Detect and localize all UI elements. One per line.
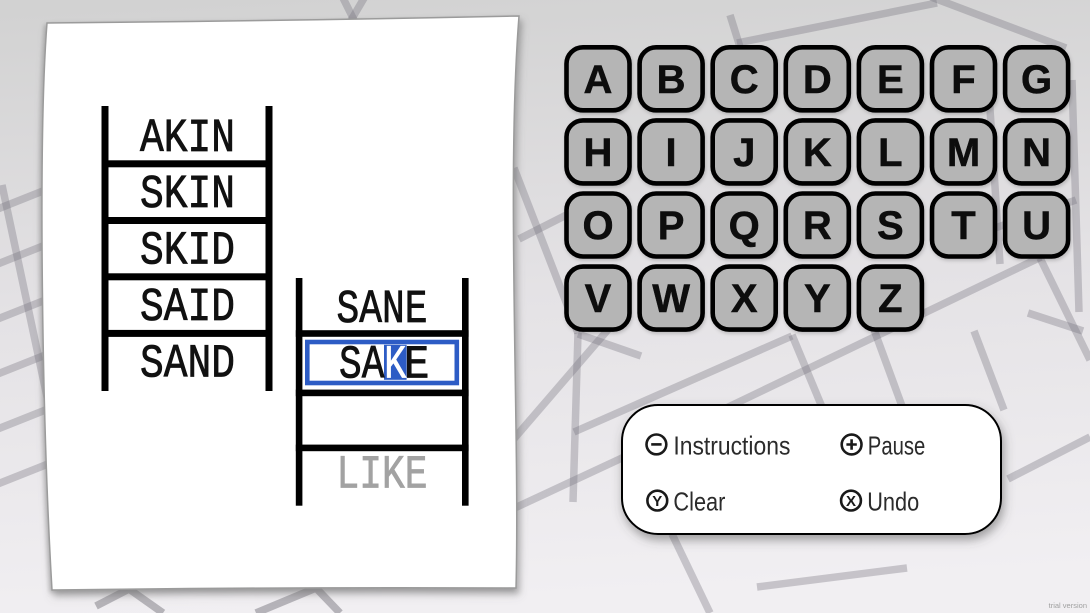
svg-text:T: T bbox=[951, 204, 975, 248]
svg-text:V: V bbox=[585, 277, 612, 321]
svg-text:C: C bbox=[730, 58, 759, 102]
svg-text:Y: Y bbox=[652, 493, 662, 510]
svg-text:E: E bbox=[877, 58, 904, 102]
svg-text:H: H bbox=[584, 131, 613, 175]
svg-text:SAND: SAND bbox=[140, 338, 235, 392]
svg-text:B: B bbox=[657, 58, 686, 102]
svg-text:SKID: SKID bbox=[140, 224, 235, 278]
svg-text:U: U bbox=[1022, 204, 1051, 248]
svg-text:Q: Q bbox=[729, 204, 760, 248]
svg-text:D: D bbox=[803, 58, 832, 102]
svg-text:Z: Z bbox=[878, 277, 902, 321]
svg-text:X: X bbox=[731, 277, 758, 321]
svg-text:J: J bbox=[733, 131, 755, 175]
svg-text:X: X bbox=[846, 493, 856, 510]
svg-text:A: A bbox=[584, 58, 613, 102]
svg-text:Undo: Undo bbox=[867, 486, 919, 516]
svg-text:Clear: Clear bbox=[673, 486, 725, 516]
svg-text:LIKE: LIKE bbox=[337, 449, 428, 503]
svg-text:AKIN: AKIN bbox=[140, 112, 235, 166]
svg-text:P: P bbox=[658, 204, 685, 248]
svg-text:S: S bbox=[877, 204, 904, 248]
svg-text:O: O bbox=[582, 204, 613, 248]
svg-text:trial version: trial version bbox=[1049, 601, 1087, 610]
svg-text:E: E bbox=[404, 338, 430, 392]
svg-text:SA: SA bbox=[339, 338, 385, 392]
svg-text:F: F bbox=[951, 58, 975, 102]
svg-text:Instructions: Instructions bbox=[673, 431, 790, 461]
svg-text:SKIN: SKIN bbox=[140, 168, 235, 222]
svg-text:N: N bbox=[1022, 131, 1051, 175]
svg-text:I: I bbox=[666, 131, 677, 175]
svg-text:W: W bbox=[652, 277, 690, 321]
svg-text:L: L bbox=[878, 131, 902, 175]
svg-text:M: M bbox=[947, 131, 980, 175]
svg-text:Y: Y bbox=[804, 277, 831, 321]
svg-text:R: R bbox=[803, 204, 832, 248]
svg-text:SANE: SANE bbox=[337, 283, 428, 337]
svg-text:SAID: SAID bbox=[140, 281, 235, 335]
svg-text:G: G bbox=[1021, 58, 1052, 102]
svg-text:Pause: Pause bbox=[868, 431, 926, 461]
svg-text:K: K bbox=[803, 131, 832, 175]
